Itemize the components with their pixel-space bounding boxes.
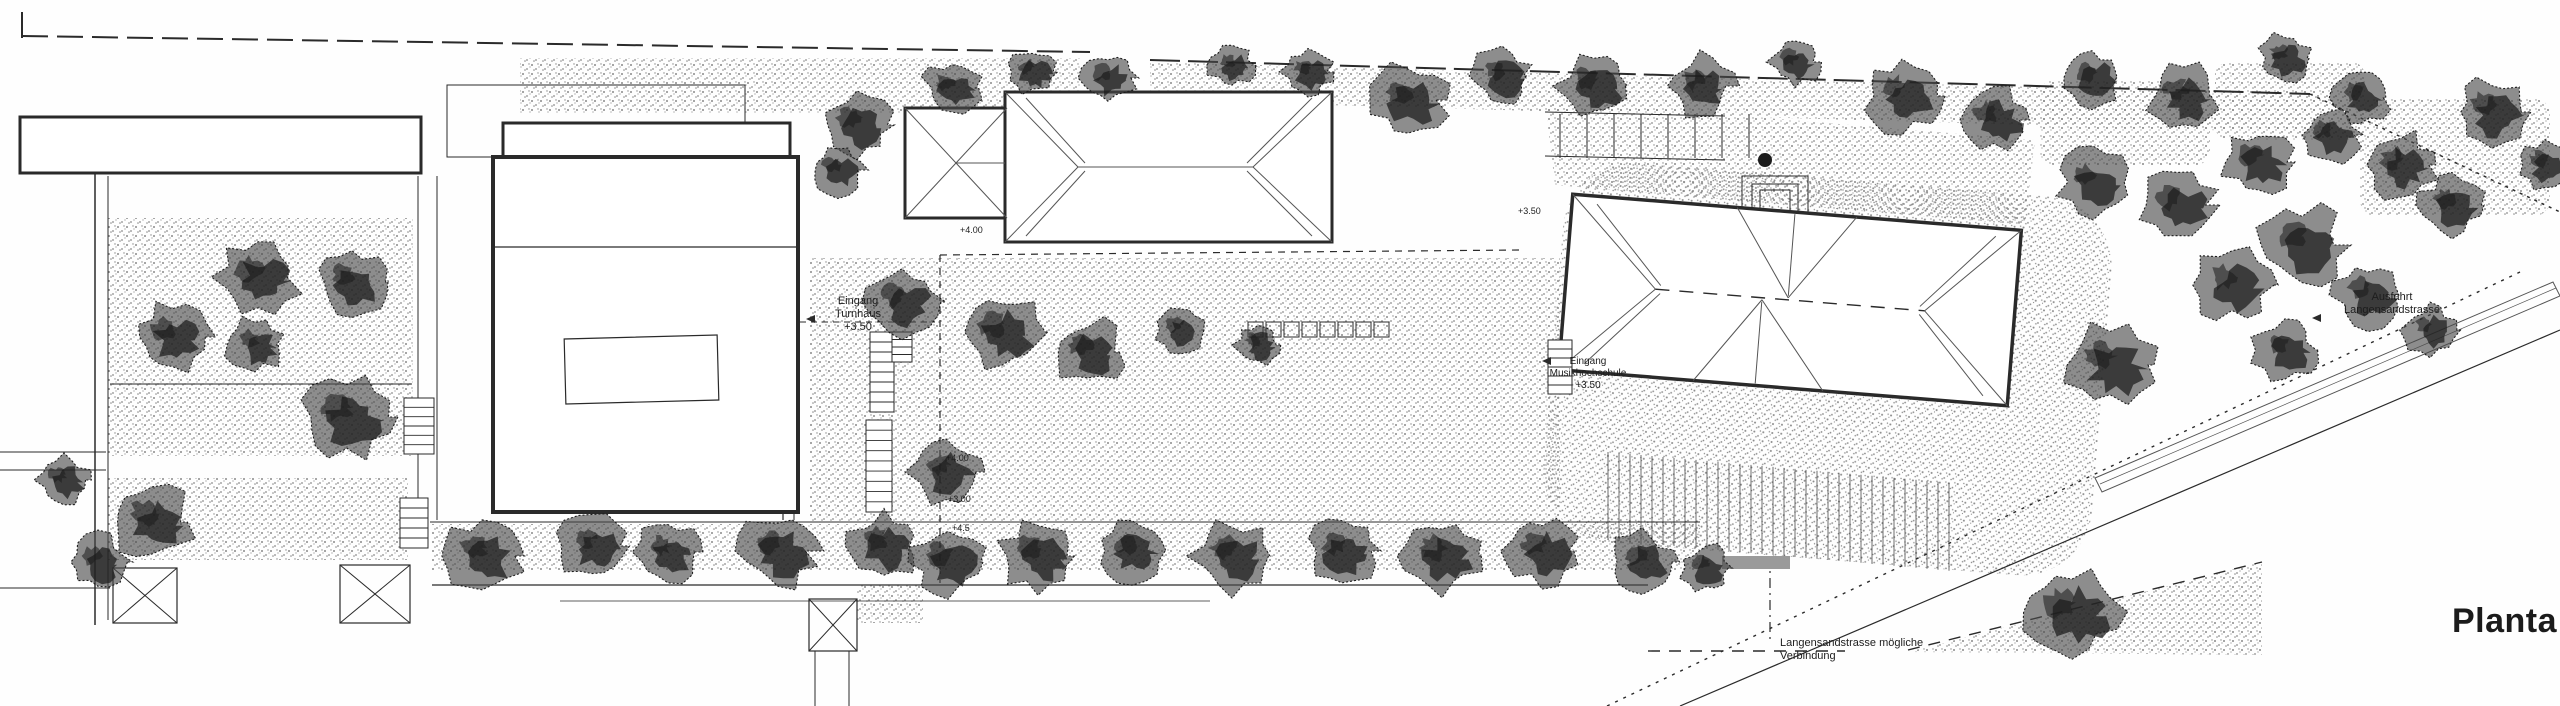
- stipple-area: [857, 585, 923, 623]
- neighbor-building: [20, 117, 421, 173]
- tree: [2193, 247, 2278, 321]
- site-plan: EingangTurnhaus+3.50EingangMusikhochschu…: [0, 0, 2560, 706]
- small-shrub: [1758, 153, 1772, 167]
- plan-title: Planta: [2452, 602, 2557, 641]
- school-building-east: [1559, 194, 2022, 406]
- ramp-outline: [2095, 282, 2560, 492]
- school-building-east-outline: [1559, 194, 2022, 406]
- tree: [2251, 319, 2319, 382]
- possible-connection-label: Langensandstrasse möglicheVerbindung: [1780, 637, 1923, 662]
- tree: [2139, 171, 2220, 236]
- site-plan-drawing: EingangTurnhaus+3.50EingangMusikhochschu…: [0, 0, 2560, 706]
- level-300: +3.00: [948, 494, 971, 504]
- tree: [632, 525, 702, 584]
- tree: [34, 453, 91, 505]
- tree: [1864, 59, 1945, 135]
- stair-outline: [866, 420, 892, 512]
- level-400-upper: +4.00: [960, 225, 983, 235]
- level-350: +3.50: [1518, 206, 1541, 216]
- annotation-arrow: [2312, 314, 2321, 322]
- level-45: +4.5: [952, 523, 970, 533]
- gym-hall: [493, 157, 798, 512]
- road-marking-bar: [1722, 556, 1790, 569]
- level-400: +4.00: [946, 453, 969, 463]
- stair-outline: [400, 498, 428, 548]
- ramp-inner-line: [2100, 288, 2556, 484]
- site-line: [940, 250, 1520, 255]
- tree: [442, 520, 524, 590]
- site-line: [22, 36, 1090, 52]
- tree: [2221, 136, 2295, 194]
